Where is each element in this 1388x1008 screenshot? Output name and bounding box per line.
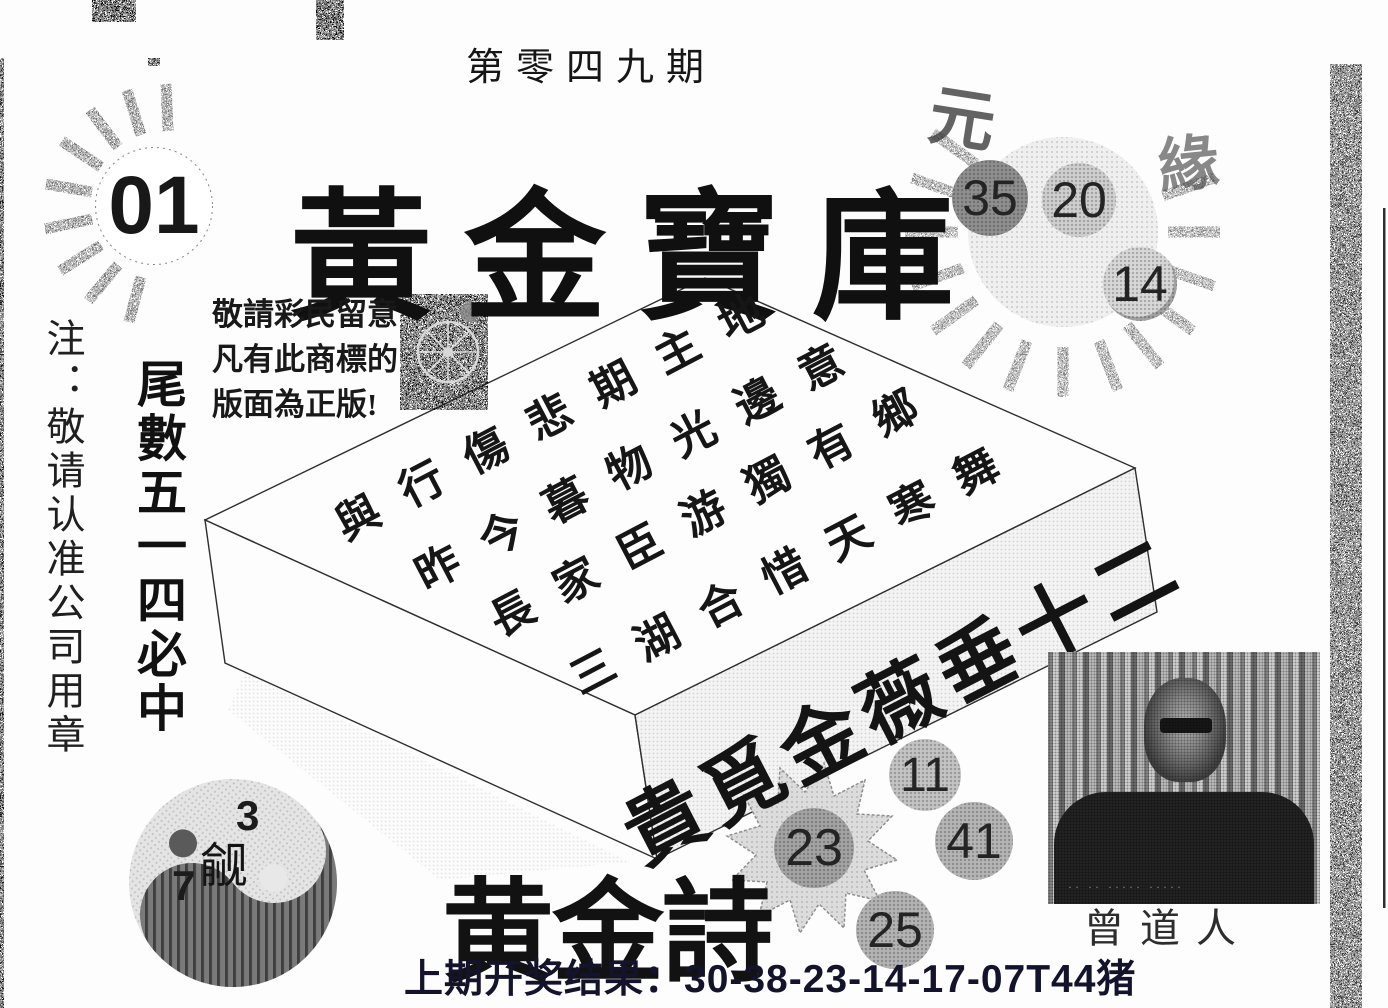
number-ball-23: 23: [774, 808, 854, 888]
calligraphy-mark-2: 緣: [1154, 113, 1223, 206]
portrait-head: [1144, 678, 1226, 782]
issue-title: 第零四九期: [466, 36, 716, 91]
portrait-caption: 曾道人: [1084, 896, 1252, 954]
last-draw-result: 上期开奖结果：30-38-23-14-17-07T44猪: [404, 948, 1136, 1004]
number-ball-20: 20: [1042, 163, 1116, 237]
number-ball-11: 11: [889, 739, 961, 811]
portrait-sunglasses: [1160, 718, 1212, 733]
number-ball-01: 01: [96, 148, 212, 264]
portrait-dotted-line: ·· ·· ····· ·····: [1068, 880, 1184, 895]
number-ball-35: 35: [952, 160, 1028, 236]
yinyang-character: 觎: [200, 826, 248, 896]
yinyang-number-bottom: 7: [172, 862, 195, 910]
right-border-band: [1330, 64, 1386, 1008]
lottery-sheet: 第零四九期 黃金寶庫 敬請彩民留意 凡有此商標的 版面為正版! 注：敬请认准公司…: [0, 0, 1388, 1008]
tail-number-tip: 尾數五一四必中: [122, 358, 194, 748]
number-ball-41: 41: [935, 802, 1013, 880]
number-ball-14: 14: [1103, 247, 1177, 321]
authenticity-notice: 敬請彩民留意 凡有此商標的 版面為正版!: [212, 292, 398, 427]
portrait-photo: [1048, 652, 1320, 904]
left-note-vertical: 注：敬请认准公司用章: [34, 318, 90, 788]
